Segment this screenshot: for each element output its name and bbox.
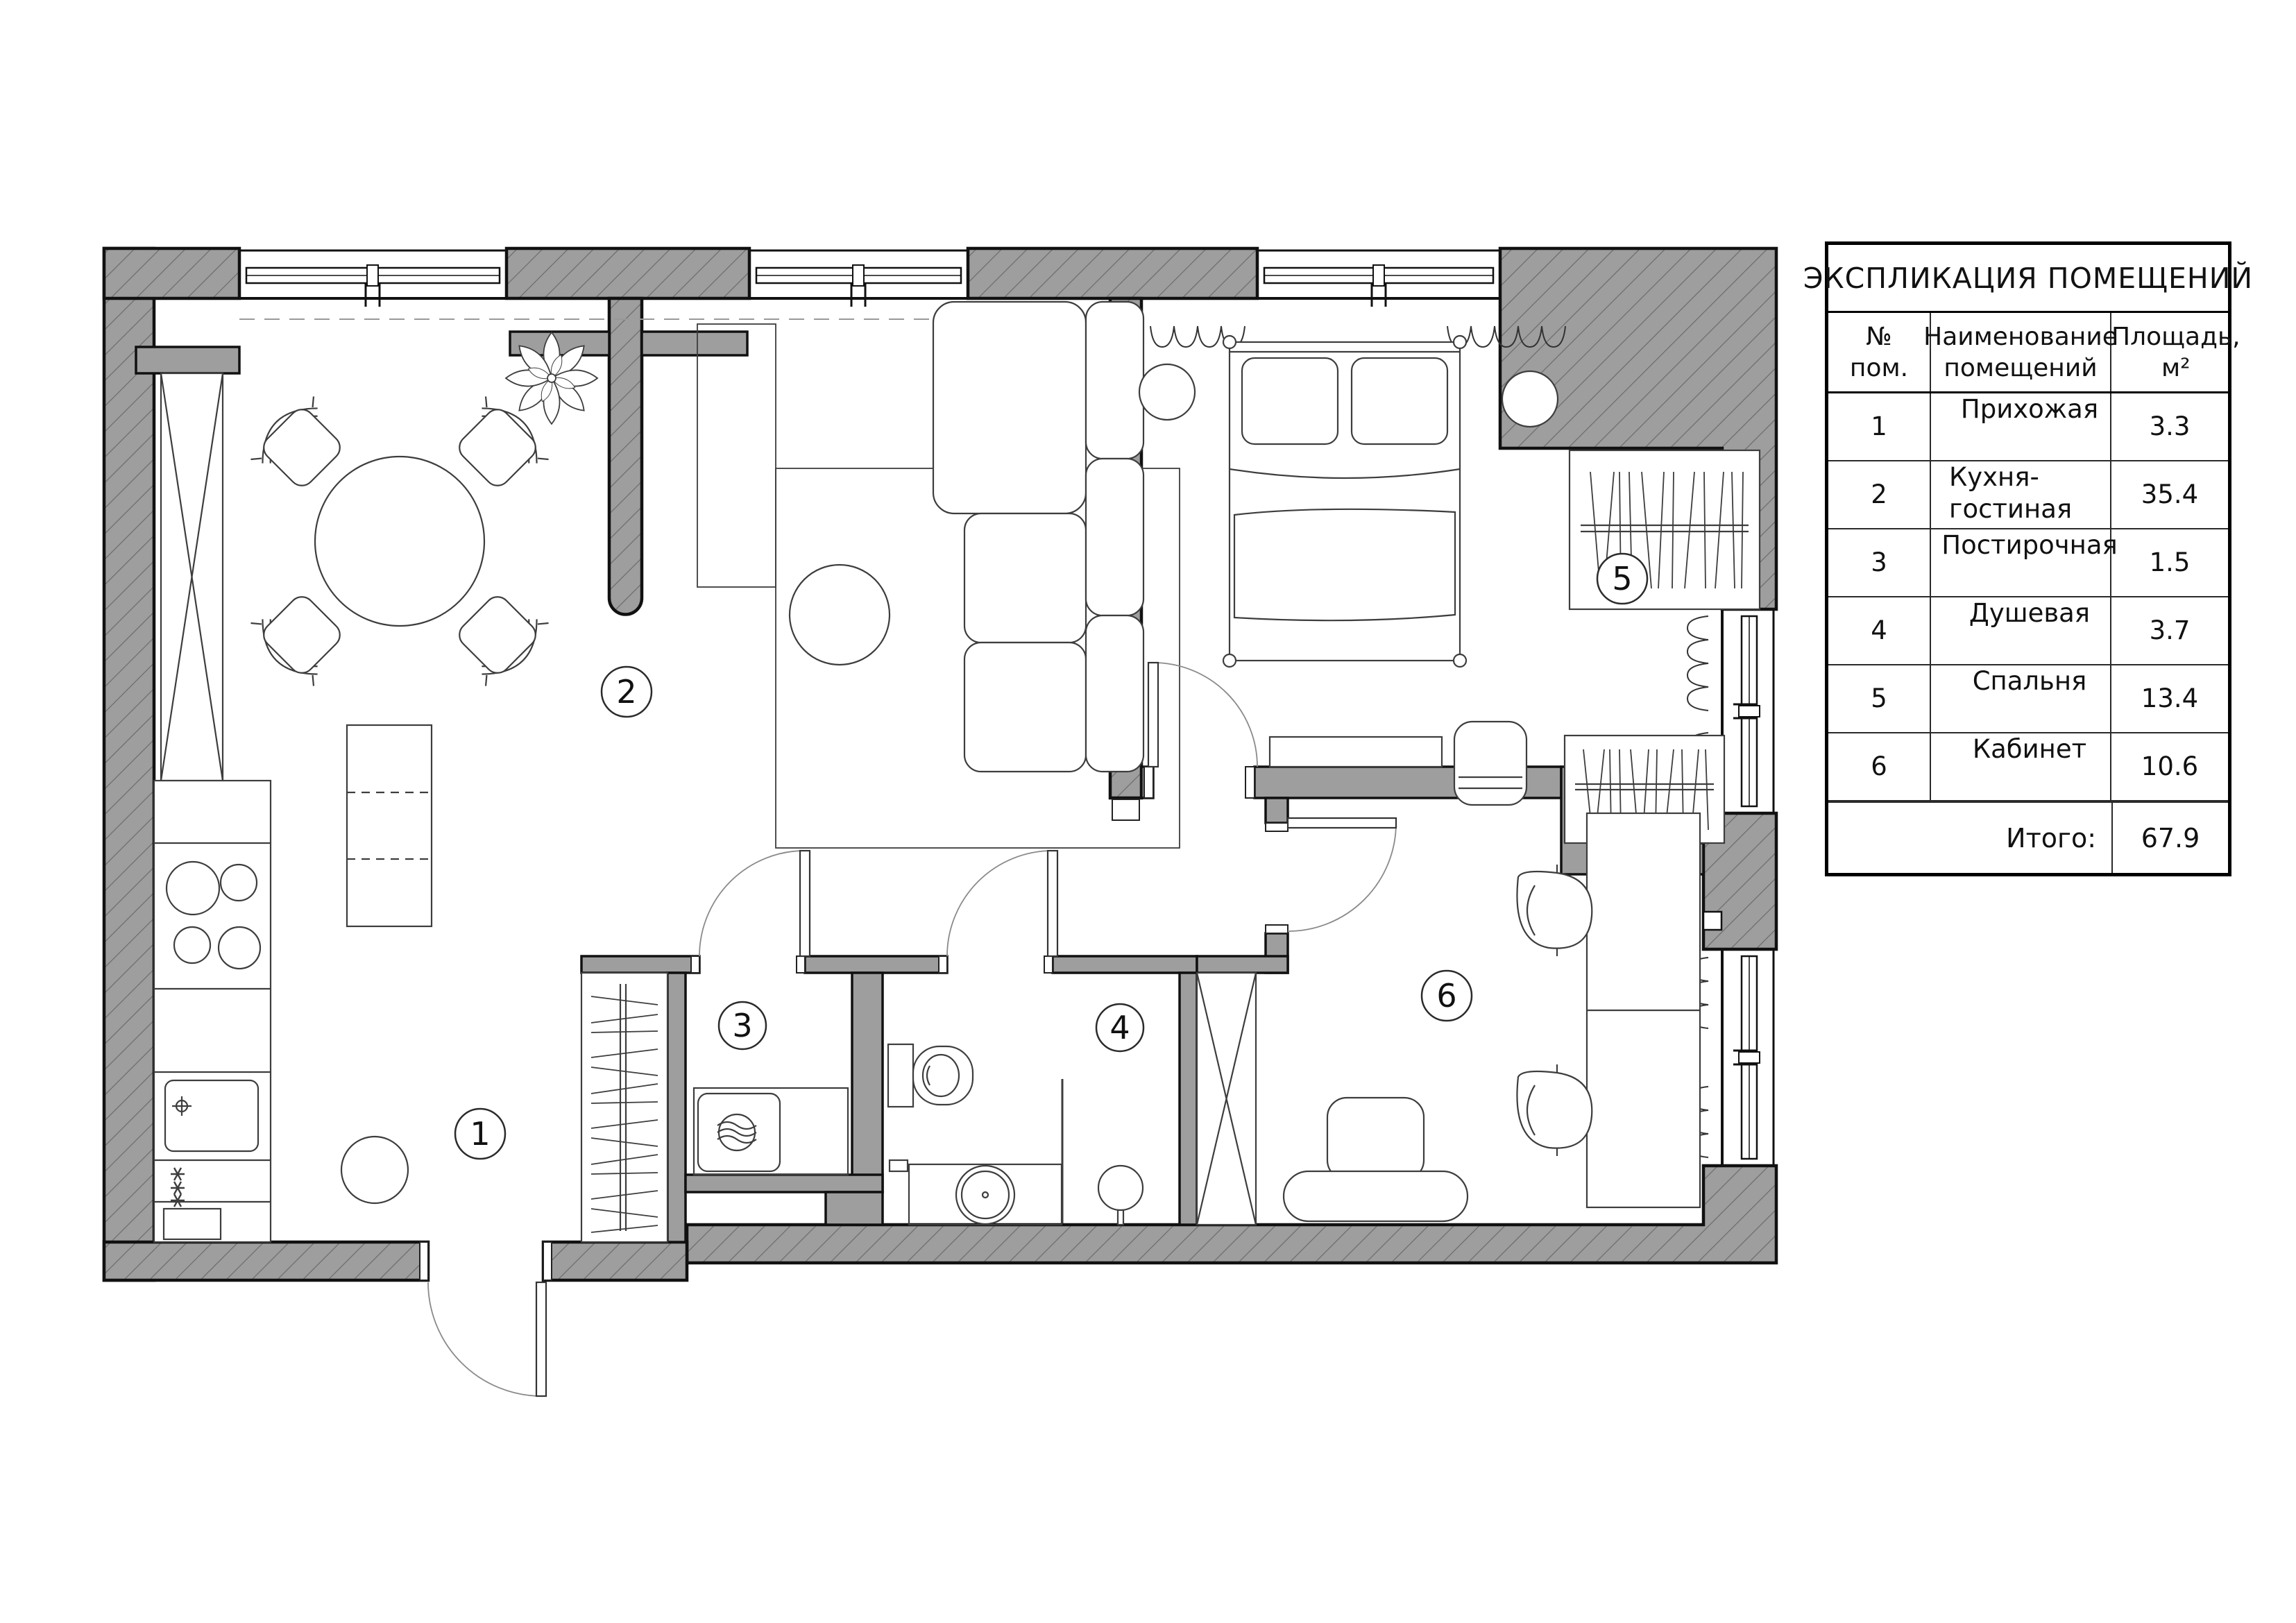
office-cabinet-x: [1197, 973, 1256, 1225]
legend-total-row: Итого: 67.9: [1828, 801, 2228, 873]
dining-set: [245, 391, 554, 692]
laundry-bottom-wall: [686, 1175, 883, 1192]
bedroom-door-leaf: [1148, 663, 1158, 767]
wall-bottom-left: [104, 1242, 428, 1280]
coffee-table: [790, 565, 890, 665]
corridor-wall-2: [805, 956, 947, 973]
dining-table: [315, 457, 484, 626]
shower-right-wall: [1180, 973, 1197, 1225]
room-name: Кабинет: [1930, 733, 2111, 800]
room-area: 10.6: [2111, 733, 2228, 800]
room-4-shower: [888, 1044, 1143, 1225]
sofa: [933, 302, 1143, 772]
room-marker-6: 6: [1422, 971, 1472, 1021]
wall-top-pier-2: [507, 248, 749, 298]
room-number-label: 5: [1612, 560, 1632, 597]
entrance-door-leaf: [536, 1282, 546, 1396]
bedroom-chair: [1454, 722, 1527, 805]
office-door-stub-top: [1266, 798, 1288, 823]
corridor-wall-3: [1053, 956, 1197, 973]
legend-table: ЭКСПЛИКАЦИЯ ПОМЕЩЕНИЙ № пом. Наименовани…: [1825, 241, 2231, 876]
legend-row-1: 1 Прихожая 3.3: [1828, 393, 2228, 461]
room-number-label: 4: [1109, 1009, 1130, 1046]
wall-left: [104, 248, 154, 1280]
window-bedroom-right: [1722, 609, 1774, 813]
window-living: [749, 250, 968, 307]
washing-machine: [694, 1088, 848, 1175]
room-marker-3: 3: [719, 1002, 766, 1049]
flush-plate: [890, 1160, 908, 1171]
plant-icon: [506, 332, 597, 424]
room-num: 1: [1828, 393, 1930, 460]
room-num: 5: [1828, 665, 1930, 732]
office-door-leaf: [1288, 818, 1396, 828]
laundry-bottom-chunk: [826, 1192, 883, 1225]
room-num: 3: [1828, 529, 1930, 596]
room-area: 1.5: [2111, 529, 2228, 596]
bed: [1223, 336, 1466, 667]
laundry-shower-partition: [852, 973, 883, 1192]
entrance-door-arc: [428, 1282, 541, 1396]
legend-col-num: № пом.: [1828, 313, 1930, 391]
nightstand-right: [1502, 371, 1558, 427]
room-num: 2: [1828, 461, 1930, 528]
bedroom-door-arc: [1153, 663, 1257, 767]
vanity-sink: [909, 1164, 1062, 1225]
window-bedroom: [1257, 250, 1500, 307]
room-name: Постирочная: [1930, 529, 2111, 596]
laundry-left-wall: [667, 973, 686, 1242]
legend-row-5: 5 Спальня 13.4: [1828, 665, 2228, 733]
wall-stub-rounded: [609, 298, 642, 615]
room-area: 13.4: [2111, 665, 2228, 732]
legend-row-2: 2 Кухня-гостиная 35.4: [1828, 461, 2228, 529]
shower-head-icon: [1098, 1166, 1143, 1225]
legend-row-3: 3 Постирочная 1.5: [1828, 529, 2228, 597]
corridor-wall-1: [581, 956, 699, 973]
legend-title: ЭКСПЛИКАЦИЯ ПОМЕЩЕНИЙ: [1828, 245, 2228, 313]
tall-cabinet-x: [161, 373, 223, 781]
kitchen-counter: [154, 781, 271, 1242]
room-number-label: 6: [1436, 977, 1456, 1014]
corridor-wall-4: [1197, 956, 1288, 973]
room-name: Душевая: [1930, 597, 2111, 664]
office-door-arc: [1288, 823, 1396, 931]
laundry-door-leaf: [800, 851, 810, 956]
windows-top: [239, 250, 1500, 319]
room-marker-5: 5: [1597, 554, 1647, 604]
room-marker-2: 2: [602, 667, 652, 717]
hall-wardrobe: [581, 973, 667, 1242]
kitchen-island: [347, 725, 432, 926]
laundry-door-arc: [699, 851, 805, 956]
window-kitchen: [239, 250, 507, 307]
floor-plan-canvas: 1 2 3 4 5 6 ЭКСПЛИКАЦИЯ ПОМЕЩЕНИЙ № пом.: [0, 0, 2296, 1623]
toilet-icon: [888, 1044, 973, 1107]
room-area: 35.4: [2111, 461, 2228, 528]
room-number-label: 3: [732, 1007, 752, 1044]
wall-top-pier-3: [968, 248, 1257, 298]
legend-row-4: 4 Душевая 3.7: [1828, 597, 2228, 665]
room-area: 3.3: [2111, 393, 2228, 460]
bedroom-dresser: [1270, 737, 1442, 767]
nightstand-left: [1139, 364, 1195, 420]
room-area: 3.7: [2111, 597, 2228, 664]
room-name: Кухня-гостиная: [1930, 461, 2111, 528]
room-number-label: 1: [470, 1115, 490, 1153]
pouf: [341, 1137, 408, 1203]
window-office-right: [1722, 949, 1774, 1166]
sink-icon: [165, 1080, 258, 1151]
shower-door-arc: [947, 851, 1053, 956]
room-marker-1: 1: [455, 1109, 505, 1159]
room-marker-4: 4: [1096, 1004, 1143, 1051]
shower-door-leaf: [1048, 851, 1057, 956]
niche-wall-mid-right: [642, 332, 747, 355]
room-3-laundry: [581, 973, 848, 1242]
total-label: Итого:: [1828, 803, 2111, 873]
wall-bottom-mid: [543, 1242, 687, 1280]
curtain-bedroom-window-a: [1687, 616, 1708, 711]
room-name: Спальня: [1930, 665, 2111, 732]
legend-col-area: Площадь, м²: [2111, 313, 2240, 391]
niche-wall-left: [136, 347, 239, 373]
freezer-icon: [171, 1168, 185, 1207]
legend-header-row: № пом. Наименование помещений Площадь, м…: [1828, 313, 2228, 393]
legend-col-name: Наименование помещений: [1930, 313, 2111, 391]
tv-cabinet: [697, 324, 776, 587]
wall-top-pier-1: [104, 248, 239, 298]
room-num: 4: [1828, 597, 1930, 664]
legend-row-6: 6 Кабинет 10.6: [1828, 733, 2228, 801]
room-name: Прихожая: [1930, 393, 2111, 460]
room-num: 6: [1828, 733, 1930, 800]
lounge-chair: [1284, 1098, 1468, 1221]
office-desks: [1587, 813, 1700, 1207]
total-value: 67.9: [2111, 803, 2228, 873]
fridge-drawer: [164, 1209, 221, 1239]
room-number-label: 2: [616, 673, 636, 711]
